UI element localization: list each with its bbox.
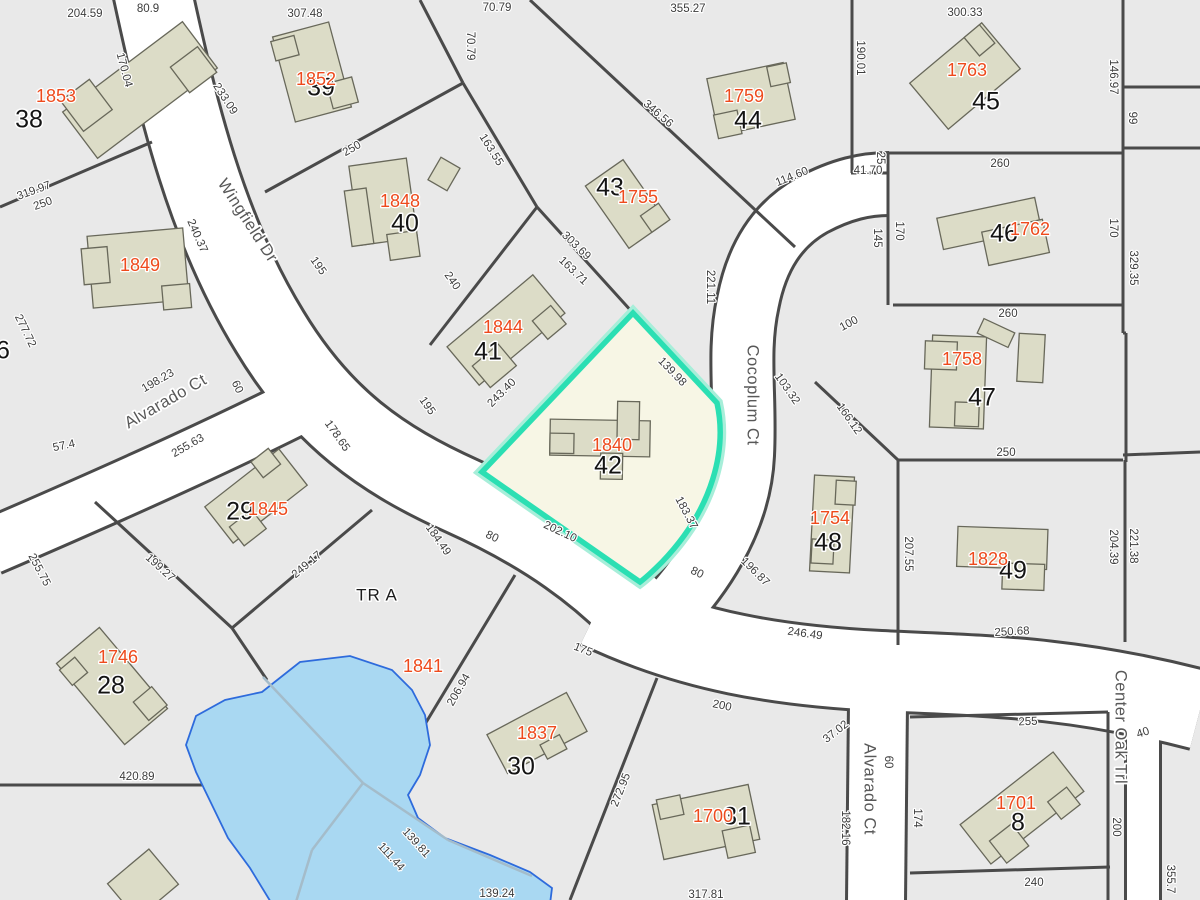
house-number-label: 1837 [517, 723, 557, 743]
dimension-label: 25 [874, 152, 886, 165]
house-number-label: 1848 [380, 191, 420, 211]
dimension-label: 145 [871, 228, 883, 247]
dimension-label: 70.79 [464, 32, 476, 61]
building-footprint [1017, 333, 1045, 382]
tract-label: TR A [356, 585, 398, 604]
street-name-label: Alvarado Ct [861, 743, 879, 835]
lot-number-label: 6 [0, 337, 10, 365]
house-number-label: 1841 [403, 656, 443, 676]
parcel-map[interactable]: 204.5980.9307.4870.79355.27300.33170.042… [0, 0, 1200, 900]
street-name-label: Cocoplum Ct [744, 345, 762, 446]
house-number-label: 1700 [693, 806, 733, 826]
dimension-label: 317.81 [688, 889, 723, 900]
dimension-label: 170 [893, 221, 905, 240]
dimension-label: 190.01 [854, 40, 866, 75]
dimension-label: 307.48 [287, 8, 322, 20]
house-number-label: 1763 [947, 60, 987, 80]
house-number-label: 1755 [618, 187, 658, 207]
dimension-label: 240 [1024, 877, 1043, 889]
house-number-label: 1828 [968, 549, 1008, 569]
house-number-label: 1852 [296, 69, 336, 89]
house-number-label: 1701 [996, 793, 1036, 813]
dimension-label: 170 [1107, 218, 1119, 237]
dimension-label: 60 [882, 756, 894, 769]
house-number-label: 1762 [1010, 219, 1050, 239]
dimension-label: 221.11 [704, 270, 716, 304]
dimension-label: 255 [1018, 716, 1038, 729]
house-number-label: 1759 [724, 86, 764, 106]
dimension-label: 41.70 [854, 165, 883, 177]
dimension-label: 200 [1110, 817, 1122, 836]
lot-number-label: 30 [507, 753, 535, 781]
dimension-label: 329.35 [1127, 250, 1139, 285]
dimension-label: 355.27 [670, 3, 705, 15]
lot-number-label: 42 [594, 452, 622, 480]
dimension-label: 174 [911, 808, 923, 828]
dimension-label: 182.16 [839, 810, 851, 845]
dimension-label: 207.55 [902, 536, 914, 571]
dimension-label: 260 [990, 158, 1009, 170]
dimension-label: 250 [996, 447, 1015, 459]
house-number-label: 1840 [592, 435, 632, 455]
house-number-label: 1853 [36, 86, 76, 106]
dimension-label: 221.38 [1127, 528, 1139, 563]
lot-number-label: 44 [734, 107, 762, 135]
dimension-label: 80.9 [137, 3, 159, 15]
dimension-label: 204.39 [1107, 529, 1119, 564]
dimension-label: 99 [1126, 112, 1138, 125]
dimension-label: 139.24 [479, 888, 515, 900]
house-number-label: 1844 [483, 317, 523, 337]
lot-number-label: 48 [814, 529, 842, 557]
lot-number-label: 41 [474, 338, 502, 366]
dimension-label: 146.97 [1107, 59, 1119, 94]
dimension-label: 260 [998, 308, 1017, 320]
dimension-label: 420.89 [119, 771, 154, 783]
lot-number-label: 38 [15, 106, 43, 134]
dimension-label: 70.79 [483, 2, 512, 14]
lot-number-label: 40 [391, 210, 419, 238]
lot-number-label: 47 [968, 384, 996, 412]
parcel-map-viewport[interactable]: 204.5980.9307.4870.79355.27300.33170.042… [0, 0, 1200, 900]
dimension-label: 250.68 [994, 625, 1030, 639]
street-name-label: Center Oak Trl [1112, 670, 1130, 784]
house-number-label: 1746 [98, 647, 138, 667]
dimension-label: 204.59 [67, 8, 102, 20]
dimension-label: 355.7 [1164, 865, 1176, 894]
house-number-label: 1758 [942, 349, 982, 369]
house-number-label: 1849 [120, 255, 160, 275]
lot-number-label: 8 [1011, 809, 1025, 837]
lot-number-label: 28 [97, 672, 125, 700]
dimension-label: 300.33 [947, 7, 982, 19]
lot-number-label: 45 [972, 88, 1000, 116]
house-number-label: 1845 [248, 499, 288, 519]
house-number-label: 1754 [810, 508, 850, 528]
